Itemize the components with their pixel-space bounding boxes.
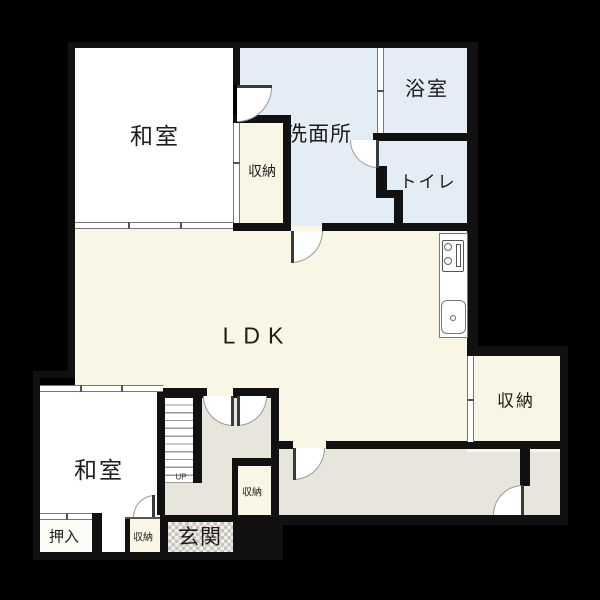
door-leaf xyxy=(237,85,272,88)
room-label-washitsu-upper: 和室 xyxy=(130,117,180,151)
room-label-shuno-upper: 収納 xyxy=(248,161,276,181)
wall xyxy=(467,42,478,356)
wall xyxy=(68,42,75,378)
wall xyxy=(125,517,130,560)
wall xyxy=(92,513,102,560)
wall xyxy=(467,346,568,356)
room-label-shuno-lower-small: 収納 xyxy=(133,529,153,544)
door-leaf xyxy=(376,140,379,168)
door-leaf xyxy=(152,495,155,517)
sliding-door-tick xyxy=(66,513,68,520)
sliding-door-tick xyxy=(180,222,182,229)
sliding-door-tick xyxy=(233,162,240,164)
stairs-up-label: UP xyxy=(175,473,186,482)
wall xyxy=(373,133,467,141)
room-label-oshiire: 押入 xyxy=(49,526,79,547)
room-label-senmenjo: 洗面所 xyxy=(286,118,352,148)
wall xyxy=(520,448,530,486)
door-leaf xyxy=(231,396,234,426)
sink-faucet-icon xyxy=(450,315,456,321)
room-label-ldk: LDK xyxy=(223,323,292,350)
wall xyxy=(394,190,403,231)
stove-burner-icon xyxy=(444,257,452,265)
wall xyxy=(193,388,202,483)
sliding-door-tick xyxy=(121,385,123,392)
wall xyxy=(233,42,240,85)
room-label-yokushitsu: 浴室 xyxy=(405,73,449,102)
door-leaf xyxy=(521,485,524,515)
wall xyxy=(233,223,291,231)
stove-grill-icon xyxy=(456,244,461,267)
room-label-shuno-right: 収納 xyxy=(497,387,535,412)
sliding-door-tick xyxy=(128,222,130,229)
wall xyxy=(275,515,568,525)
wall xyxy=(68,42,478,48)
sliding-door-tick xyxy=(80,385,82,392)
door-leaf xyxy=(293,448,296,480)
wall xyxy=(33,371,40,560)
wall xyxy=(160,515,168,560)
hallway-under-stairs-floor xyxy=(163,483,200,515)
wall xyxy=(560,346,568,525)
sliding-door-tick xyxy=(467,399,474,401)
sliding-door xyxy=(233,123,240,223)
wall xyxy=(157,388,165,515)
stove-burner-icon xyxy=(444,243,452,251)
wall xyxy=(271,396,279,518)
sliding-door-tick xyxy=(377,90,384,92)
room-label-toire: トイレ xyxy=(400,168,457,193)
sliding-door xyxy=(40,385,163,392)
room-label-shuno-hallway: 収納 xyxy=(242,484,262,499)
wall xyxy=(125,517,160,519)
door-leaf xyxy=(291,231,294,263)
wall xyxy=(233,515,283,560)
room-label-washitsu-lower: 和室 xyxy=(74,451,124,485)
wall xyxy=(279,441,293,449)
room-label-genkan: 玄関 xyxy=(178,521,222,551)
door-leaf xyxy=(237,396,240,426)
sliding-door xyxy=(75,222,233,229)
floor-plan: 和室 洗面所 浴室 トイレ 収納 LDK 収納 和室 押入 収納 玄関 収納 U… xyxy=(0,0,600,600)
wall xyxy=(232,458,238,518)
